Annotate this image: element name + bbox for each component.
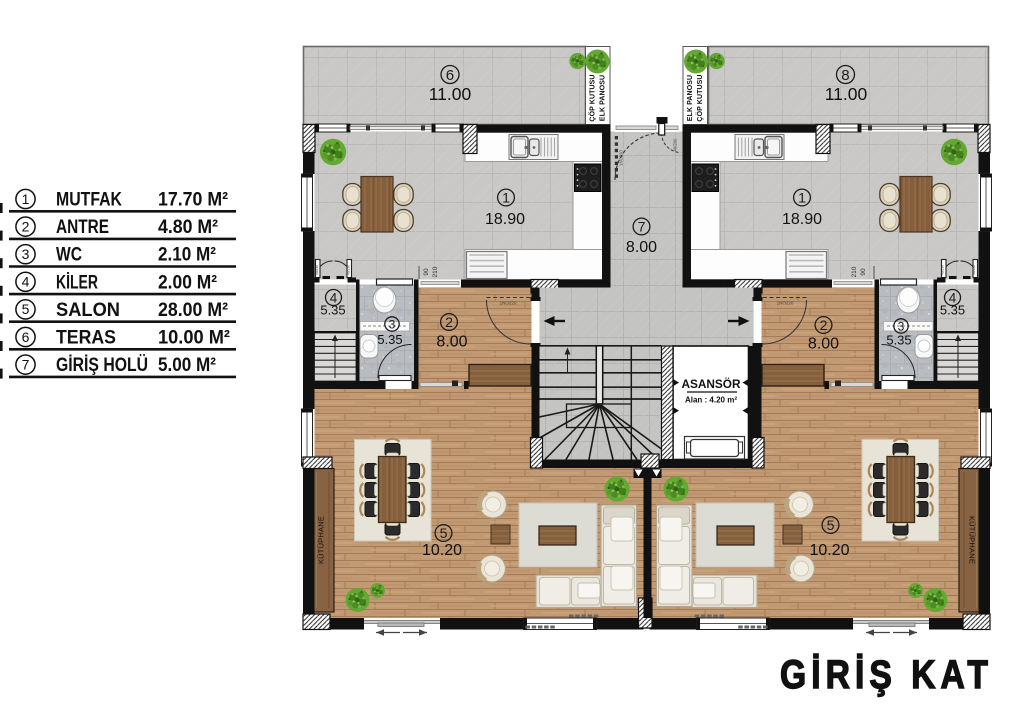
svg-text:28.00 M²: 28.00 M² xyxy=(158,300,228,321)
svg-text:2: 2 xyxy=(22,218,30,234)
svg-text:6: 6 xyxy=(446,67,454,84)
svg-text:5: 5 xyxy=(827,517,835,533)
svg-text:1: 1 xyxy=(22,191,30,207)
svg-text:2: 2 xyxy=(820,317,828,333)
svg-text:5.00 M²: 5.00 M² xyxy=(158,355,216,376)
svg-text:ÇÖP KUTUSU: ÇÖP KUTUSU xyxy=(588,74,597,121)
svg-text:90: 90 xyxy=(423,268,430,276)
svg-text:Alan : 4.20 m²: Alan : 4.20 m² xyxy=(685,396,737,405)
svg-text:3: 3 xyxy=(22,246,30,262)
svg-text:40/230: 40/230 xyxy=(941,265,945,275)
svg-text:1: 1 xyxy=(798,190,806,206)
svg-text:10.20: 10.20 xyxy=(809,542,849,559)
svg-text:1NO220: 1NO220 xyxy=(777,301,794,306)
svg-text:4: 4 xyxy=(22,274,30,290)
svg-text:8.00: 8.00 xyxy=(626,239,657,256)
svg-text:3: 3 xyxy=(389,317,396,331)
svg-text:7: 7 xyxy=(638,219,646,235)
svg-text:ELK PANOSU: ELK PANOSU xyxy=(600,75,607,121)
svg-text:SALON: SALON xyxy=(56,300,120,321)
svg-text:10.20: 10.20 xyxy=(422,542,462,559)
svg-text:KÜTÜPHANE: KÜTÜPHANE xyxy=(317,516,326,564)
svg-text:5.35: 5.35 xyxy=(377,332,402,347)
svg-text:MUTFAK: MUTFAK xyxy=(56,190,122,211)
svg-text:5.35: 5.35 xyxy=(940,303,965,318)
svg-text:40/230: 40/230 xyxy=(315,265,319,275)
svg-text:11.00: 11.00 xyxy=(825,84,868,104)
svg-text:1NO220: 1NO220 xyxy=(619,150,624,166)
svg-text:18.90: 18.90 xyxy=(782,211,822,228)
svg-text:40/200: 40/200 xyxy=(673,138,678,151)
svg-text:GİRİŞ KAT: GİRİŞ KAT xyxy=(780,653,993,697)
svg-text:8: 8 xyxy=(841,67,849,84)
svg-text:5: 5 xyxy=(440,525,448,541)
svg-text:2.10 M²: 2.10 M² xyxy=(158,245,216,266)
svg-text:17.70 M²: 17.70 M² xyxy=(158,190,228,211)
svg-text:40/230: 40/230 xyxy=(972,265,976,275)
svg-text:4.80 M²: 4.80 M² xyxy=(158,217,218,238)
svg-text:1: 1 xyxy=(502,190,510,206)
svg-text:40/230: 40/230 xyxy=(347,265,351,275)
svg-text:ASANSÖR: ASANSÖR xyxy=(682,377,741,391)
svg-text:210: 210 xyxy=(851,266,858,277)
svg-text:8.00: 8.00 xyxy=(808,336,839,353)
svg-text:90: 90 xyxy=(860,268,867,276)
svg-text:10.00 M²: 10.00 M² xyxy=(158,328,230,349)
svg-text:5: 5 xyxy=(22,301,30,317)
svg-text:KİLER: KİLER xyxy=(56,272,98,293)
svg-text:ANTRE: ANTRE xyxy=(56,217,109,238)
svg-text:18.90: 18.90 xyxy=(485,211,525,228)
svg-text:WC: WC xyxy=(56,245,82,266)
svg-text:3: 3 xyxy=(898,319,905,333)
svg-text:1NO220: 1NO220 xyxy=(500,301,517,306)
svg-text:ELK PANOSU: ELK PANOSU xyxy=(687,75,694,121)
svg-text:TERAS: TERAS xyxy=(56,328,116,349)
svg-text:ÇÖP KUTUSU: ÇÖP KUTUSU xyxy=(695,74,704,121)
svg-text:11.00: 11.00 xyxy=(429,84,472,104)
svg-text:KÜTÜPHANE: KÜTÜPHANE xyxy=(968,516,977,564)
svg-text:2.00 M²: 2.00 M² xyxy=(158,272,217,293)
svg-text:6: 6 xyxy=(22,329,30,345)
svg-text:5.35: 5.35 xyxy=(320,303,345,318)
svg-text:GİRİŞ HOLÜ: GİRİŞ HOLÜ xyxy=(56,355,148,376)
svg-text:210: 210 xyxy=(432,266,439,277)
svg-text:7: 7 xyxy=(22,356,30,372)
svg-text:8.00: 8.00 xyxy=(436,334,467,351)
svg-text:2: 2 xyxy=(445,314,453,330)
